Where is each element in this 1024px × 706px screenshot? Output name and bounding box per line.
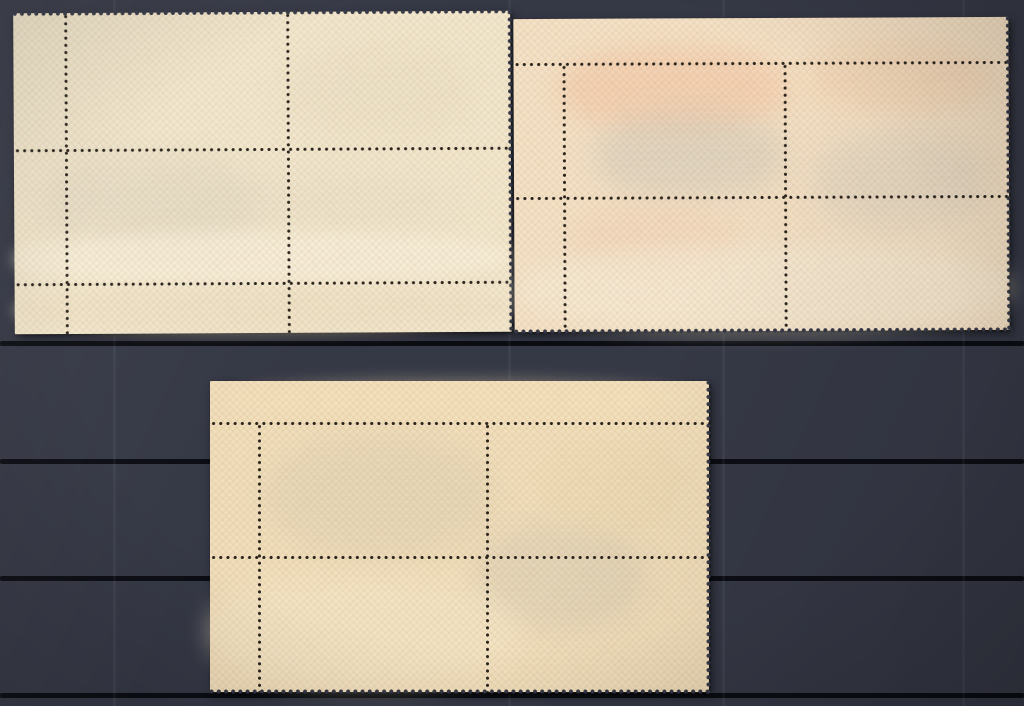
stockbook-page-photo [0,0,1024,706]
perforation-column [562,64,568,332]
gum-show-through-patch [283,46,473,137]
torn-perforated-edge-bottom [513,326,1012,335]
paper-texture [513,17,1009,332]
gum-show-through-patch [569,203,739,274]
stockbook-slot-line [0,341,1024,346]
stamp-block-bottom-center [210,381,709,692]
gum-show-through-patch [210,576,520,686]
gum-show-through-patch [475,521,645,631]
gum-show-through-patch [265,436,495,556]
gum-show-through-patch [44,152,255,253]
gum-show-through-patch [230,381,690,419]
perforation-row [514,194,1009,201]
torn-perforated-edge-right [1004,15,1012,332]
perforation-column [257,423,262,692]
perforation-row [210,421,709,426]
gum-show-through-patch [558,46,788,132]
perforation-column [783,63,789,331]
stockbook-slot-line [0,693,1024,698]
perforation-column [485,423,490,692]
gum-show-through-patch [514,245,1009,332]
perforation-row [15,280,512,288]
gum-show-through-patch [14,231,511,286]
perforation-row [210,555,709,560]
perforation-row [514,60,1009,67]
perforation-column [63,13,70,334]
gum-show-through-patch [74,171,454,233]
perforation-row [14,146,511,154]
gum-show-through-patch [15,283,512,335]
gum-show-through-patch [814,132,989,228]
perforation-column [285,12,292,333]
stamp-block-top-left [13,11,512,335]
paper-texture [210,381,709,692]
gum-show-through-patch [540,441,690,531]
paper-texture [13,11,512,335]
gum-show-through-patch [594,113,784,199]
gum-show-through-patch [803,42,993,113]
torn-perforated-edge-top [11,8,512,18]
torn-perforated-edge-right [705,379,712,694]
stamp-block-top-right [513,17,1009,332]
